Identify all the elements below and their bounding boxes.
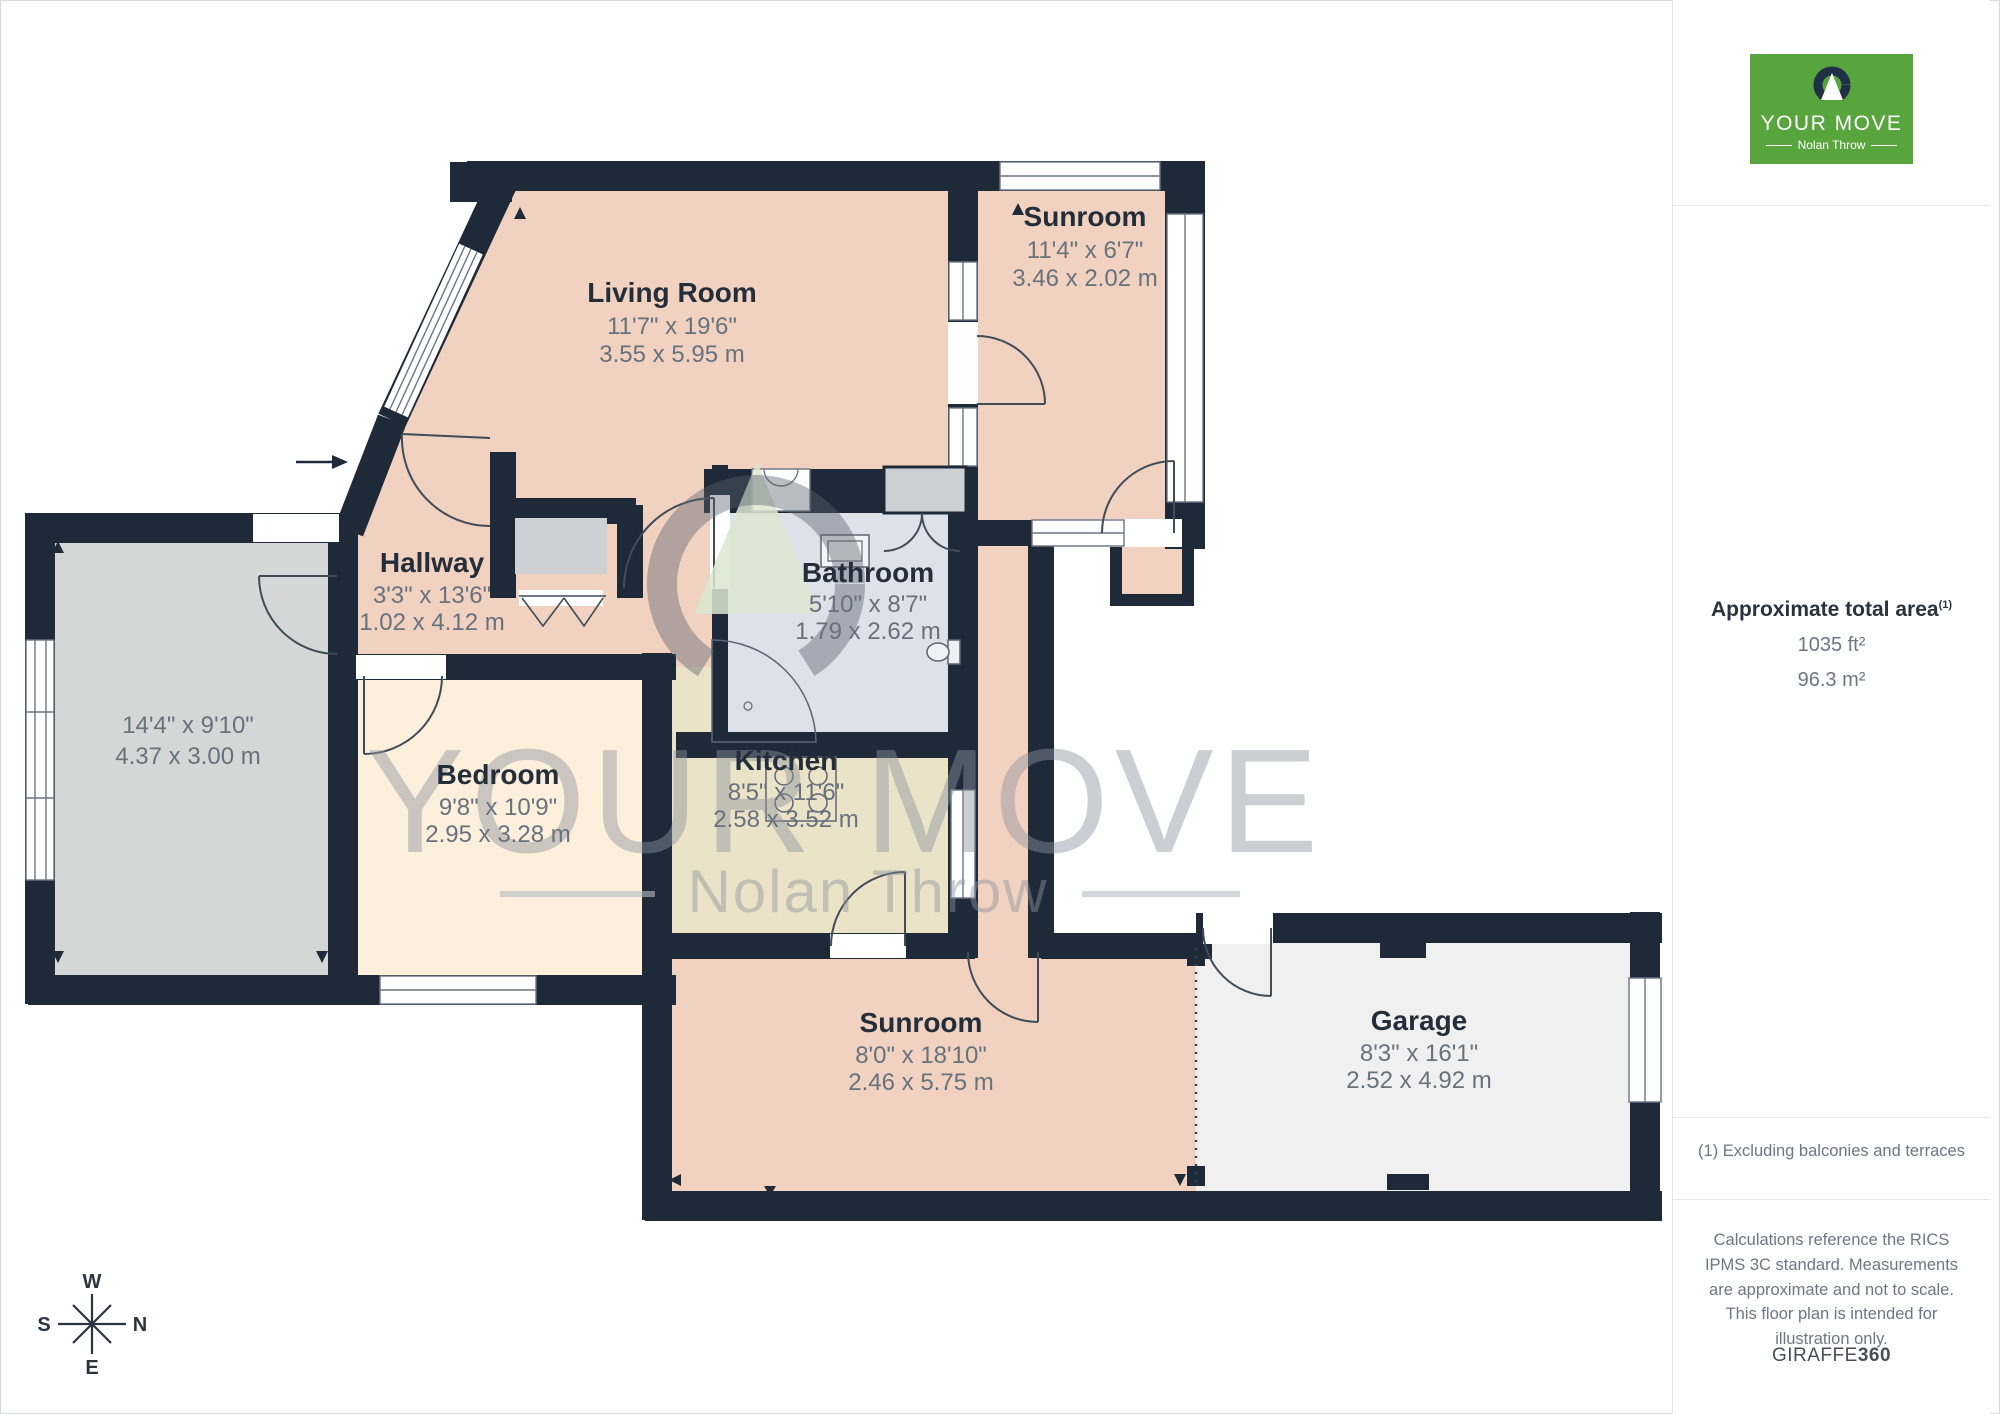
compass-w: W [83, 1271, 102, 1293]
garage-metric: 2.52 x 4.92 m [1346, 1067, 1491, 1094]
bathroom-imperial: 5'10" x 8'7" [809, 591, 927, 618]
sidebar-divider [1673, 1199, 1990, 1200]
watermark-sub: Nolan Throw [687, 858, 1048, 925]
sidebar-divider [1673, 1117, 1990, 1118]
compass-s: S [37, 1314, 50, 1336]
total-area-heading: Approximate total area(1) [1673, 598, 1990, 622]
sunroom-bottom-metric: 2.46 x 5.75 m [848, 1069, 993, 1096]
agency-logo-sub: Nolan Throw [1766, 138, 1898, 152]
porch-step [884, 467, 966, 513]
total-area-block: Approximate total area(1) 1035 ft² 96.3 … [1673, 598, 1990, 692]
hall-cupboard [515, 518, 607, 574]
kitchen-imperial: 8'5" x 11'6" [728, 779, 845, 806]
agency-logo-sub-text: Nolan Throw [1798, 138, 1866, 152]
agency-logo: YOUR MOVE Nolan Throw [1750, 54, 1913, 164]
reception-imperial: 14'4" x 9'10" [122, 712, 254, 739]
your-move-ring-icon [1809, 66, 1855, 108]
info-sidebar: YOUR MOVE Nolan Throw Approximate total … [1672, 0, 1990, 1414]
bedroom-imperial: 9'8" x 10'9" [439, 794, 557, 821]
total-area-heading-sup: (1) [1939, 599, 1952, 611]
sunroom-bottom-label: Sunroom [860, 1007, 983, 1038]
compass-e: E [85, 1357, 98, 1379]
total-area-imperial: 1035 ft² [1673, 634, 1990, 657]
bedroom-metric: 2.95 x 3.28 m [425, 821, 570, 848]
compass-n: N [133, 1314, 147, 1336]
living-room-label: Living Room [587, 277, 757, 308]
garage-imperial: 8'3" x 16'1" [1360, 1040, 1478, 1067]
agency-logo-brand: YOUR MOVE [1761, 112, 1903, 136]
garage-label: Garage [1371, 1005, 1468, 1036]
compass-icon: W E S N [37, 1271, 147, 1379]
giraffe360-number: 360 [1858, 1345, 1891, 1366]
area-footnote: (1) Excluding balconies and terraces [1673, 1142, 1990, 1161]
giraffe360-credit: GIRAFFE360 [1673, 1345, 1990, 1367]
hallway-metric: 1.02 x 4.12 m [359, 609, 504, 636]
entrance-arrow [296, 455, 348, 469]
reception-metric: 4.37 x 3.00 m [115, 743, 260, 770]
disclaimer-text: Calculations reference the RICS IPMS 3C … [1697, 1228, 1966, 1352]
kitchen-metric: 2.58 x 3.52 m [713, 806, 858, 833]
bedroom-label: Bedroom [437, 759, 560, 790]
living-room-imperial: 11'7" x 19'6" [607, 313, 737, 340]
sunroom-top-label: Sunroom [1024, 201, 1147, 232]
hallway-label: Hallway [380, 547, 485, 578]
kitchen-label: Kitchen [735, 745, 838, 776]
total-area-metric: 96.3 m² [1673, 669, 1990, 692]
sunroom-bottom-imperial: 8'0" x 18'10" [855, 1042, 987, 1069]
sunroom-top-metric: 3.46 x 2.02 m [1012, 265, 1157, 292]
living-room-metric: 3.55 x 5.95 m [599, 341, 744, 368]
giraffe360-brand: GIRAFFE [1772, 1345, 1858, 1366]
bathroom-metric: 1.79 x 2.62 m [795, 618, 940, 645]
sunroom-top-imperial: 11'4" x 6'7" [1027, 237, 1144, 264]
total-area-heading-text: Approximate total area [1711, 598, 1939, 621]
sidebar-divider [1673, 205, 1990, 206]
hallway-imperial: 3'3" x 13'6" [373, 582, 491, 609]
bathroom-label: Bathroom [802, 557, 934, 588]
